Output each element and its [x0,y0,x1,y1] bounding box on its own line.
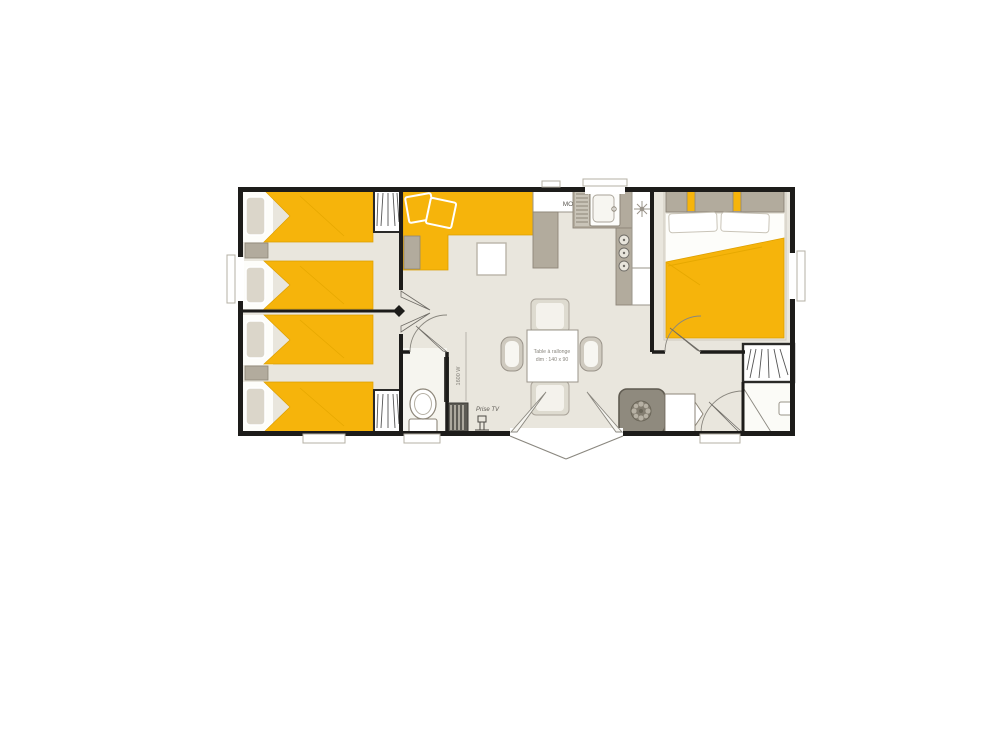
kitchen-window-sill [583,179,627,186]
table-label-line2: dim : 140 x 90 [536,357,569,363]
pillow [669,212,718,233]
wardrobe-bedroom-1 [374,189,400,232]
wardrobe-bathroom [743,344,794,382]
sofa-end-table [404,236,420,269]
washbasin-unit [665,394,695,433]
headboard-bolster [733,191,741,211]
entrance-swing-left [510,436,566,459]
top-vent-sill [542,181,560,187]
pillow [246,197,265,235]
bedside-shelf [245,366,268,380]
entrance-swing-right [566,436,623,459]
headboard-bolster [687,191,695,211]
sink-basin [593,195,614,222]
bottom-window-sill-3 [700,434,740,443]
wardrobe-bedroom-2 [374,390,400,433]
water-heater [619,389,665,434]
sofa-cushion [426,198,457,229]
headboard-cabinet [666,190,784,212]
coffee-table [477,243,506,275]
pillow [246,267,265,303]
pillow [721,212,770,233]
entrance-gap [510,428,623,439]
dining-table [527,330,578,382]
microwave-label: MO [563,201,573,208]
pillow [246,388,265,425]
stove-burners [619,235,629,271]
bedside-shelf [245,243,268,258]
electric-heater [447,403,468,432]
floor-plan-canvas: Table à rallonge dim : 140 x 90 MO [0,0,1000,750]
heater-power-label: 1600 W [456,366,462,386]
draining-board [575,191,589,226]
wc [409,389,437,433]
toilet-tank [409,419,437,433]
pillow [246,321,265,358]
table-label-line1: Table à rallonge [534,349,571,355]
left-window-sill [227,255,235,303]
kitchen-tall-unit [533,212,558,268]
bottom-window-sill-2 [404,434,440,443]
master-bedroom [664,188,786,340]
bottom-window-sill-1 [303,434,345,443]
mobile-home-floor-plan: Table à rallonge dim : 140 x 90 MO [0,0,1000,750]
right-window-sill [797,251,805,301]
tv-outlet-label: Prise TV [476,407,500,413]
